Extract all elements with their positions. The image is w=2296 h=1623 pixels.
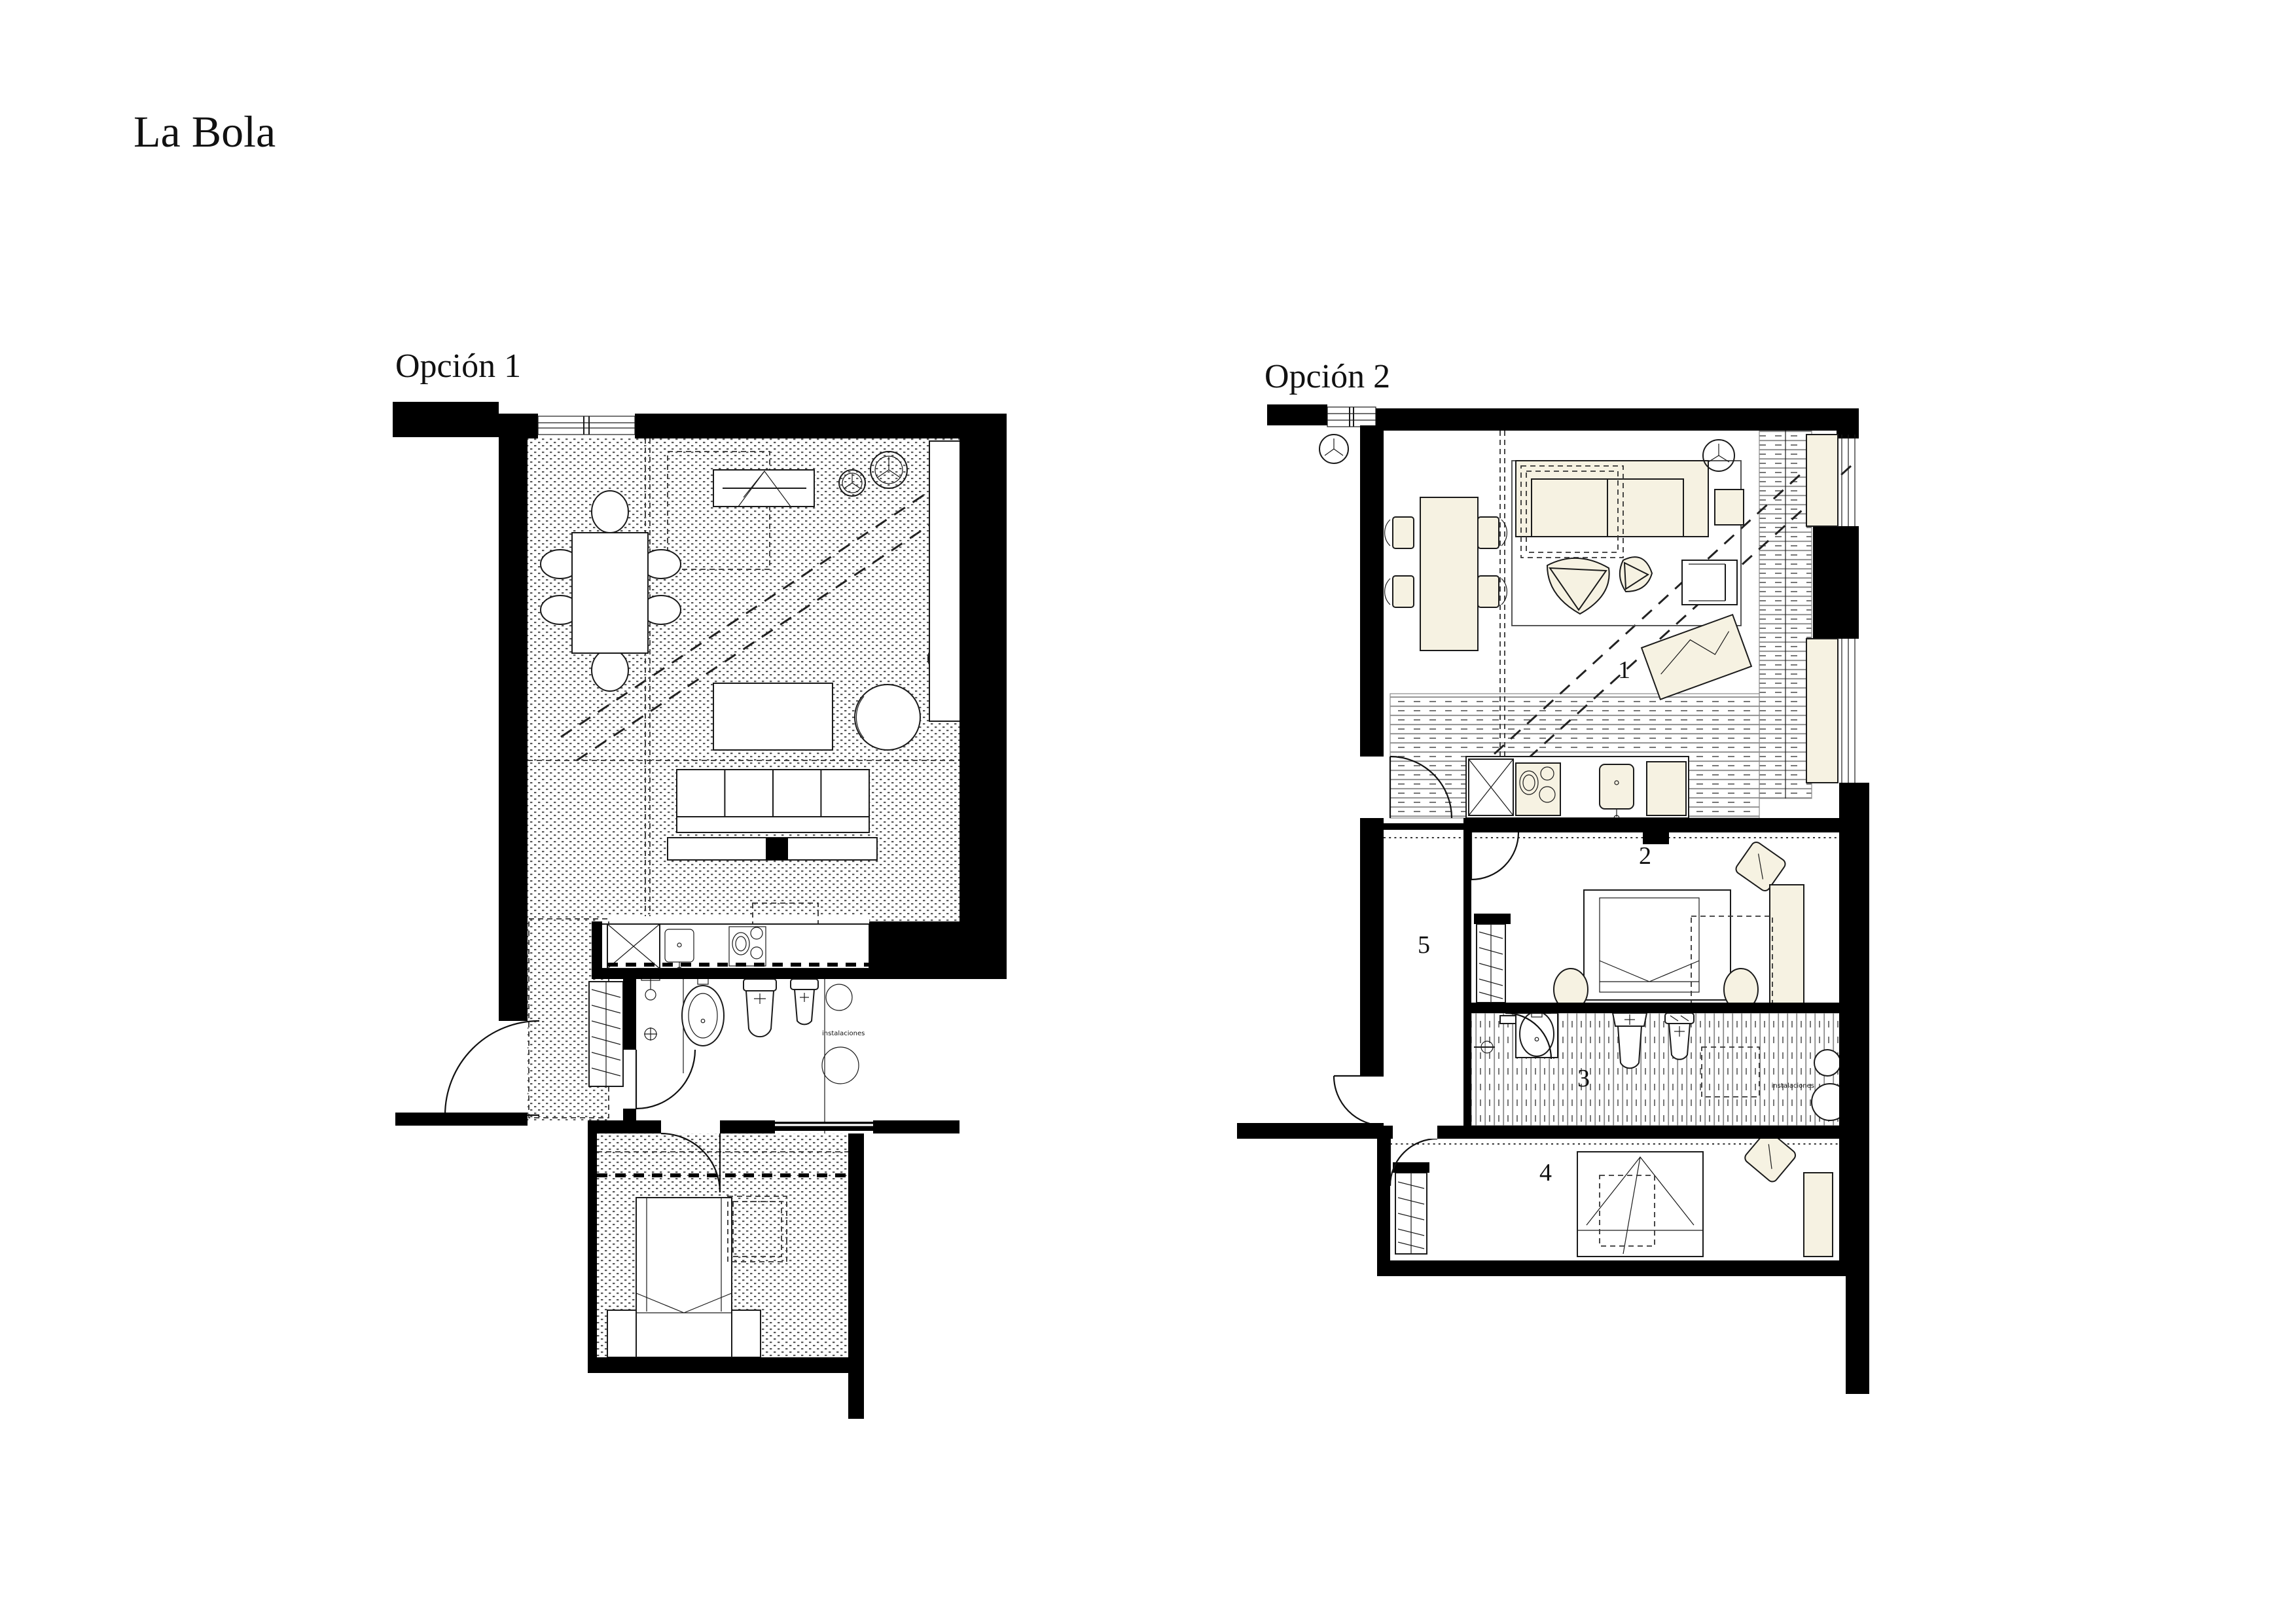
plan1-kitchen xyxy=(600,924,869,972)
plan2-utility-label: instalaciones xyxy=(1772,1082,1814,1090)
plan2: 1 2 xyxy=(1237,404,1869,1394)
window-bench xyxy=(1806,639,1838,783)
washbasin-icon xyxy=(1516,1010,1558,1058)
dining-chair xyxy=(1385,576,1414,607)
dining-chair xyxy=(1478,576,1507,607)
armchair xyxy=(1682,560,1737,605)
plan2-room-number-3: 3 xyxy=(1577,1065,1590,1092)
wall-top xyxy=(1376,408,1859,431)
wall-right-pilaster xyxy=(1813,526,1859,639)
wall-bedroom2-bottom xyxy=(1471,1003,1846,1013)
dining-table xyxy=(572,533,648,653)
plan2-bedroom-second: 4 xyxy=(1390,1130,1833,1257)
plan2-bedroom-main: 2 xyxy=(1474,840,1804,1010)
wall-bedroom-left xyxy=(588,1133,597,1357)
closet-wall-stub xyxy=(1474,914,1511,924)
plan2-dining-set xyxy=(1385,497,1507,651)
sliding-door-icon xyxy=(775,1122,873,1131)
round-lounge-chair xyxy=(855,685,920,750)
wall-bedroom-right-stub xyxy=(848,1373,864,1419)
wall-bath-left-upper xyxy=(623,979,636,1050)
wall-top-left-stub xyxy=(393,402,499,437)
closet-wall-stub xyxy=(1393,1162,1429,1173)
nightstand xyxy=(732,1310,761,1357)
wall-bedroom-right xyxy=(848,1133,864,1357)
wall-right-bottom-stub xyxy=(1846,1276,1869,1394)
wall-left-upper xyxy=(1360,425,1384,757)
wall-left-mid xyxy=(1360,818,1384,1076)
wall-corridor-right xyxy=(1463,827,1471,1126)
bench xyxy=(1770,885,1804,1005)
wall-left-bottom-stub xyxy=(395,1113,528,1126)
wall-bedroom2-top xyxy=(1471,818,1846,832)
kitchen-cabinet xyxy=(1647,762,1686,815)
plan1-utility-label: instalaciones xyxy=(822,1030,865,1037)
wall-under-counter xyxy=(600,969,869,979)
floor-plan-sheet: La Bola Opción 1 Opción 2 xyxy=(0,0,2296,1623)
plant-icon xyxy=(1620,557,1652,592)
wall-left xyxy=(499,438,528,1021)
wall-chimney-notch xyxy=(1643,832,1669,844)
wall-corridor-bottom-left xyxy=(588,1120,661,1133)
plan2-room-number-4: 4 xyxy=(1539,1159,1552,1186)
hall-closet xyxy=(589,982,623,1086)
page-title: La Bola xyxy=(134,107,276,156)
wall-right-lower xyxy=(1839,783,1869,1276)
plan1-wardrobe xyxy=(713,470,814,507)
chaise-lounge xyxy=(1641,615,1751,700)
wall-bedroom4-left xyxy=(1377,1139,1390,1260)
nightstand xyxy=(607,1310,636,1357)
wall-corridor-bottom-mid xyxy=(720,1120,775,1133)
window-bench xyxy=(1806,435,1838,526)
dining-chair xyxy=(1478,517,1507,548)
bedroom2-door-arc xyxy=(1471,832,1518,880)
washing-machine-icon xyxy=(607,924,660,969)
closet xyxy=(1395,1173,1427,1254)
wall-corridor-top xyxy=(1384,823,1463,830)
plan1-shelving-strip xyxy=(929,441,961,721)
entry-door-arc xyxy=(445,1021,539,1115)
dining-chair xyxy=(592,649,628,691)
bed xyxy=(1584,890,1731,1000)
plant-icon xyxy=(1547,558,1609,614)
toilet-icon xyxy=(744,979,776,1037)
bed xyxy=(636,1198,732,1357)
coffee-table xyxy=(713,683,833,750)
plan2-room-number-1: 1 xyxy=(1618,656,1630,684)
wall-right xyxy=(960,429,1007,979)
window-icon xyxy=(1842,435,1855,526)
closet xyxy=(1477,924,1505,1003)
plan2-room-number-2: 2 xyxy=(1639,842,1651,870)
entry-door-arc xyxy=(1334,1076,1384,1126)
plan2-label: Opción 2 xyxy=(1265,358,1390,395)
plan1: instalaciones xyxy=(393,402,1007,1419)
plan1-label: Opción 1 xyxy=(395,348,521,385)
wall-right-top xyxy=(1837,431,1859,438)
washing-machine-icon xyxy=(1469,759,1513,815)
floor-plan-drawing: La Bola Opción 1 Opción 2 xyxy=(0,0,2296,1623)
dining-chair xyxy=(1385,517,1414,548)
cooktop-icon xyxy=(1516,763,1560,815)
wall-bath-bottom-right xyxy=(873,1120,960,1133)
side-table xyxy=(1715,490,1744,525)
wall-kitchen-right-block xyxy=(869,921,1007,979)
dining-chair xyxy=(592,491,628,533)
ceiling-fan-icon xyxy=(1319,435,1348,463)
wall-bedroom-bottom xyxy=(588,1357,864,1373)
sofa xyxy=(677,770,869,832)
bedroom4-door-opening xyxy=(1393,1126,1437,1139)
plan2-kitchen xyxy=(1466,757,1689,821)
tv-unit-block xyxy=(766,838,788,860)
window-icon xyxy=(1327,407,1376,427)
window-icon xyxy=(1842,639,1855,783)
plan2-room-number-5: 5 xyxy=(1418,931,1430,959)
dining-table xyxy=(1420,497,1478,651)
bench xyxy=(1804,1173,1833,1257)
wall-top-left-stub xyxy=(1267,404,1327,425)
plan2-sofa xyxy=(1516,461,1708,537)
ceiling-fan-icon xyxy=(1703,440,1734,471)
wall-bedroom4-bottom xyxy=(1377,1260,1846,1276)
bed xyxy=(1577,1152,1703,1257)
